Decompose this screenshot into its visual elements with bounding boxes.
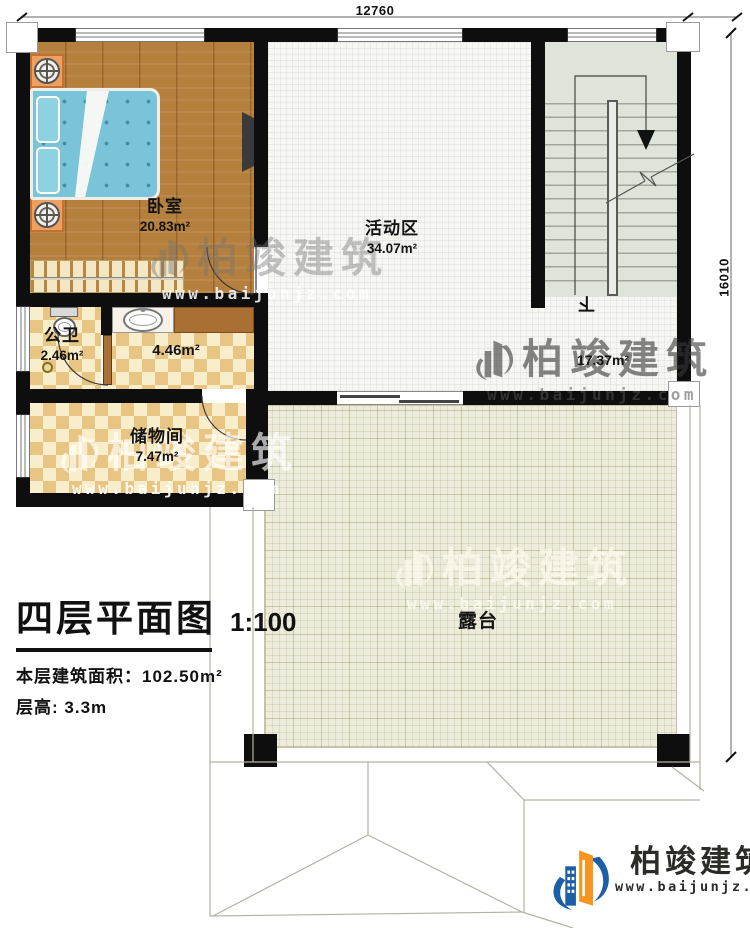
terrace-label: 露台 bbox=[458, 610, 498, 635]
company-brand: 柏竣建筑 bbox=[630, 845, 750, 879]
window bbox=[337, 28, 463, 42]
hallway-label: 4.46m² bbox=[152, 341, 200, 361]
bed-sheet-fold bbox=[75, 91, 109, 197]
corner-post bbox=[668, 381, 700, 407]
terrace-column bbox=[657, 734, 690, 767]
terrace-floor bbox=[264, 405, 677, 748]
wall-segment bbox=[531, 28, 545, 308]
window bbox=[75, 28, 205, 42]
wall-segment bbox=[254, 28, 268, 247]
floor-height-label: 层高: bbox=[16, 698, 59, 717]
floor-area-value: 102.50m² bbox=[142, 667, 223, 686]
toilet-tank bbox=[50, 307, 78, 317]
stairs-down-label: 下 bbox=[578, 293, 595, 318]
wall-segment bbox=[677, 28, 691, 405]
sliding-door bbox=[337, 391, 463, 405]
stair-stringer bbox=[607, 100, 618, 296]
company-logo: 柏竣建筑 www.baijunjz.com bbox=[545, 845, 750, 911]
stair-hall-label: 17.37m² bbox=[577, 351, 629, 369]
floor-plan-canvas: 12760 16010 卧室 20.83m² 活动区 34.07m² 公卫 2.… bbox=[0, 0, 750, 928]
title-underline bbox=[16, 648, 212, 652]
pillow bbox=[36, 147, 60, 194]
side-counter bbox=[174, 307, 254, 333]
bathroom-label: 公卫 2.46m² bbox=[41, 325, 84, 365]
wall-segment bbox=[463, 391, 691, 405]
hallway-area: 4.46m² bbox=[152, 341, 200, 361]
wall-segment bbox=[16, 389, 202, 403]
corner-post bbox=[6, 22, 38, 53]
storage-area: 7.47m² bbox=[130, 448, 184, 466]
wall-segment bbox=[16, 293, 268, 307]
wall-segment bbox=[16, 493, 268, 507]
window bbox=[16, 414, 30, 478]
bedroom-name: 卧室 bbox=[140, 196, 190, 218]
company-url: www.baijunjz.com bbox=[615, 879, 750, 895]
wardrobe-rod bbox=[31, 277, 183, 280]
activity-label: 活动区 34.07m² bbox=[365, 218, 419, 258]
wall-segment bbox=[246, 391, 337, 405]
tv bbox=[242, 112, 254, 172]
storage-name: 储物间 bbox=[130, 426, 184, 448]
bedroom-label: 卧室 20.83m² bbox=[140, 196, 190, 236]
sliding-door-panel bbox=[340, 395, 400, 398]
sliding-door-panel bbox=[399, 400, 459, 403]
window bbox=[16, 306, 30, 372]
company-logo-icon bbox=[545, 845, 609, 911]
double-bed bbox=[30, 88, 160, 200]
terrace-column bbox=[244, 734, 277, 767]
bathroom-door-leaf bbox=[103, 335, 112, 385]
bathroom-area: 2.46m² bbox=[41, 347, 84, 365]
floor-area-label: 本层建筑面积： bbox=[16, 667, 142, 686]
lamp-icon bbox=[34, 58, 60, 84]
floor-height-value: 3.3m bbox=[64, 698, 107, 717]
bathroom-name: 公卫 bbox=[41, 325, 84, 347]
plan-scale: 1:100 bbox=[230, 607, 297, 638]
window bbox=[567, 28, 657, 42]
bedroom-area: 20.83m² bbox=[140, 218, 190, 236]
stair-hall-area: 17.37m² bbox=[577, 351, 629, 369]
title-block: 四层平面图 1:100 本层建筑面积：102.50m² 层高: 3.3m bbox=[16, 588, 297, 718]
wall-segment bbox=[254, 307, 268, 391]
wall-segment bbox=[101, 307, 112, 335]
corner-post bbox=[243, 479, 275, 511]
lamp-icon bbox=[34, 202, 60, 228]
wardrobe bbox=[30, 260, 184, 293]
activity-name: 活动区 bbox=[365, 218, 419, 240]
plan-title: 四层平面图 bbox=[16, 588, 216, 642]
dimension-right: 16010 bbox=[717, 248, 732, 308]
terrace-name: 露台 bbox=[458, 610, 498, 635]
pillow bbox=[36, 96, 60, 143]
activity-area: 34.07m² bbox=[365, 240, 419, 258]
dimension-top: 12760 bbox=[340, 3, 410, 18]
storage-label: 储物间 7.47m² bbox=[130, 426, 184, 466]
corner-post bbox=[666, 22, 700, 52]
